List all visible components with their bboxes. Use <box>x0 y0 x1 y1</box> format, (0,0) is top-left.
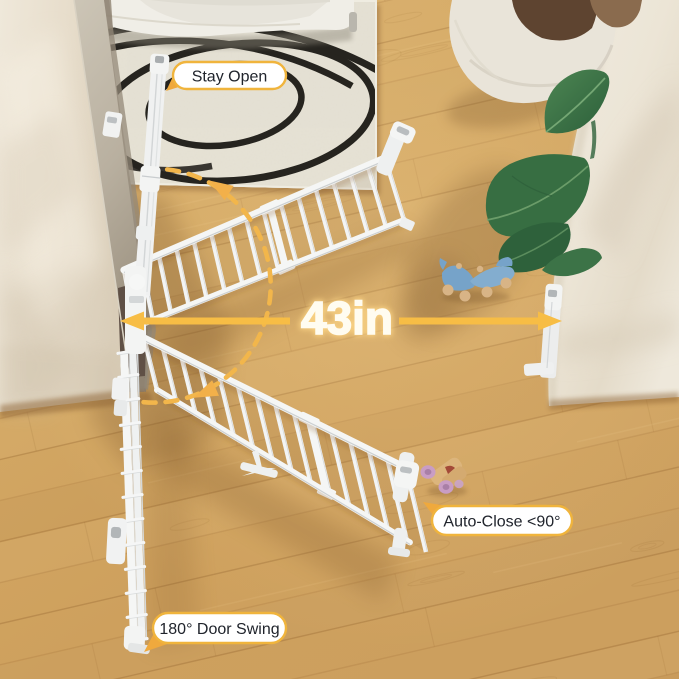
svg-text:43in: 43in <box>301 292 393 344</box>
svg-text:Auto-Close <90°: Auto-Close <90° <box>443 513 560 530</box>
svg-text:Stay Open: Stay Open <box>192 68 268 85</box>
svg-text:180° Door Swing: 180° Door Swing <box>159 621 279 638</box>
